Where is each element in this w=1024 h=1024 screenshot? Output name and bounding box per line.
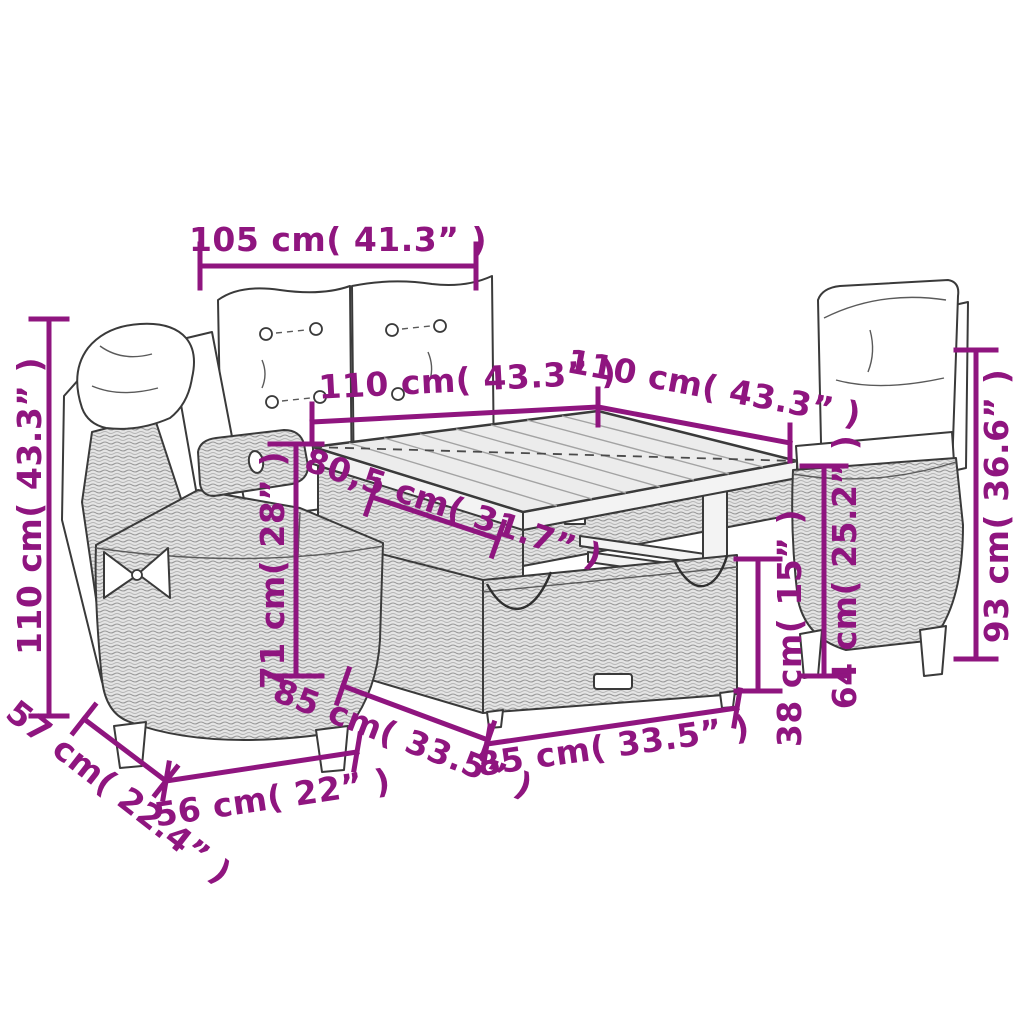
right-chair-foot (920, 626, 946, 676)
cushion-button (386, 324, 398, 336)
diagram-canvas: 105 cm( 41.3” ) 110 cm( 43.3” ) 110 cm( … (0, 0, 1024, 1024)
dimension-label: 56 cm( 22” ) (152, 761, 393, 835)
base-latch (594, 674, 632, 689)
cushion-button (310, 323, 322, 335)
cushion-button (260, 328, 272, 340)
right-chair (792, 280, 968, 678)
dim-seat-width-56: 56 cm( 22” ) (152, 734, 393, 835)
base-foot (720, 691, 735, 708)
storage-base (358, 548, 737, 728)
dimension-label: 71 cm( 28” ) (253, 451, 292, 689)
dimension-label: 64 cm( 25.2” ) (825, 435, 864, 710)
right-chair-seat-shell (792, 458, 963, 650)
left-chair-headrest-pillow (77, 324, 194, 429)
cushion-button (434, 320, 446, 332)
dim-cushion-width-105: 105 cm( 41.3” ) (189, 220, 487, 288)
furniture-dimension-diagram: 105 cm( 41.3” ) 110 cm( 43.3” ) 110 cm( … (0, 0, 1024, 1024)
dimension-label: 93 cm( 36.6” ) (977, 369, 1016, 644)
recline-strap-knot (132, 570, 142, 580)
dim-left-chair-height-110: 110 cm( 43.3” ) (10, 319, 67, 716)
dimension-label: 85 cm( 33.5” ) (475, 707, 752, 784)
dimension-label: 110 cm( 43.3” ) (10, 357, 49, 655)
dimension-label: 38 cm( 15” ) (770, 509, 809, 747)
cushion-button (266, 396, 278, 408)
dimension-tick (73, 705, 95, 733)
dimension-label: 105 cm( 41.3” ) (189, 220, 487, 259)
